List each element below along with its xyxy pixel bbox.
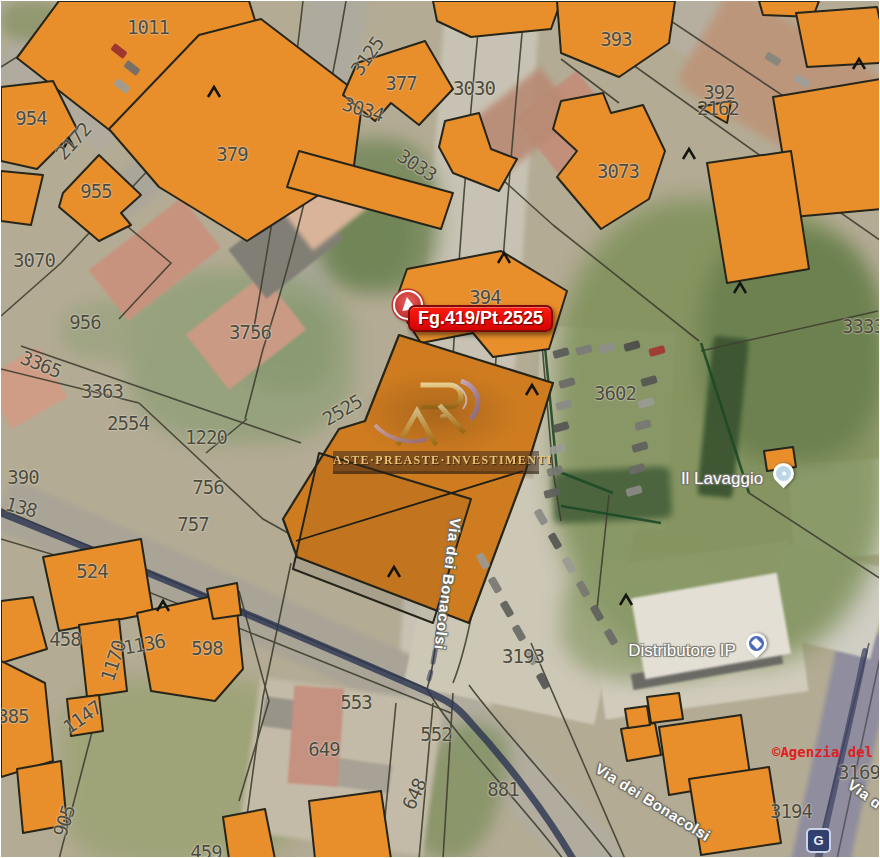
parcel-number-label: 379 bbox=[216, 143, 247, 165]
parcel-number-label: 3030 bbox=[453, 77, 495, 99]
poi-label-distributore: Distributore IP bbox=[628, 641, 736, 661]
agency-watermark: ASTE·PREASTE·INVESTIMENTI bbox=[333, 379, 539, 477]
watermark-brand-text: ASTE·PREASTE·INVESTIMENTI bbox=[333, 451, 539, 474]
parcel-number-label: 756 bbox=[192, 476, 223, 498]
parcel-number-label: 3073 bbox=[597, 160, 639, 182]
fence-lines bbox=[544, 337, 749, 523]
parcel-number-label: 649 bbox=[308, 738, 339, 760]
parcel-number-label: 3333 bbox=[842, 315, 880, 337]
parcel-number-label: 881 bbox=[487, 778, 518, 800]
parcel-number-label: 757 bbox=[177, 513, 208, 535]
parcel-number-label: 598 bbox=[191, 637, 222, 659]
road-badge-icon: G bbox=[806, 828, 831, 853]
parcel-number-label: 2554 bbox=[107, 412, 149, 434]
parcel-number-label: 3602 bbox=[594, 382, 636, 404]
parcel-number-label: 377 bbox=[385, 72, 416, 94]
parcel-number-label: 458 bbox=[49, 628, 80, 650]
copyright-notice: ©Agenzia del bbox=[772, 744, 873, 760]
parcel-number-label: 3193 bbox=[502, 645, 544, 667]
parcel-number-label: 459 bbox=[190, 841, 221, 858]
parcel-number-label: 3756 bbox=[229, 321, 271, 343]
parcel-number-label: 553 bbox=[340, 691, 371, 713]
parcel-number-label: 524 bbox=[76, 560, 107, 582]
parcel-number-label: 954 bbox=[15, 107, 46, 129]
parcel-reference-callout: Fg.419/Pt.2525 bbox=[408, 305, 553, 332]
parcel-number-label: 3070 bbox=[13, 249, 55, 271]
parcel-number-label: 393 bbox=[600, 28, 631, 50]
parcel-number-label: 390 bbox=[7, 466, 38, 488]
parcel-number-label: 3363 bbox=[81, 380, 123, 402]
parcel-number-label: 552 bbox=[420, 723, 451, 745]
agency-logo bbox=[333, 379, 539, 449]
parcel-number-label: 1011 bbox=[127, 16, 169, 38]
poi-label-lavaggio: Il Lavaggio bbox=[681, 469, 763, 489]
parcel-number-label: 956 bbox=[69, 311, 100, 333]
parcel-number-label: 1220 bbox=[185, 426, 227, 448]
cadastral-map-canvas[interactable]: 1011954217295537930709563756336533631220… bbox=[0, 0, 880, 858]
parcel-number-label: 385 bbox=[0, 705, 29, 727]
parcel-number-label: 3194 bbox=[770, 800, 812, 822]
parcel-number-label: 955 bbox=[80, 180, 111, 202]
parcel-number-label: 2162 bbox=[697, 97, 739, 119]
